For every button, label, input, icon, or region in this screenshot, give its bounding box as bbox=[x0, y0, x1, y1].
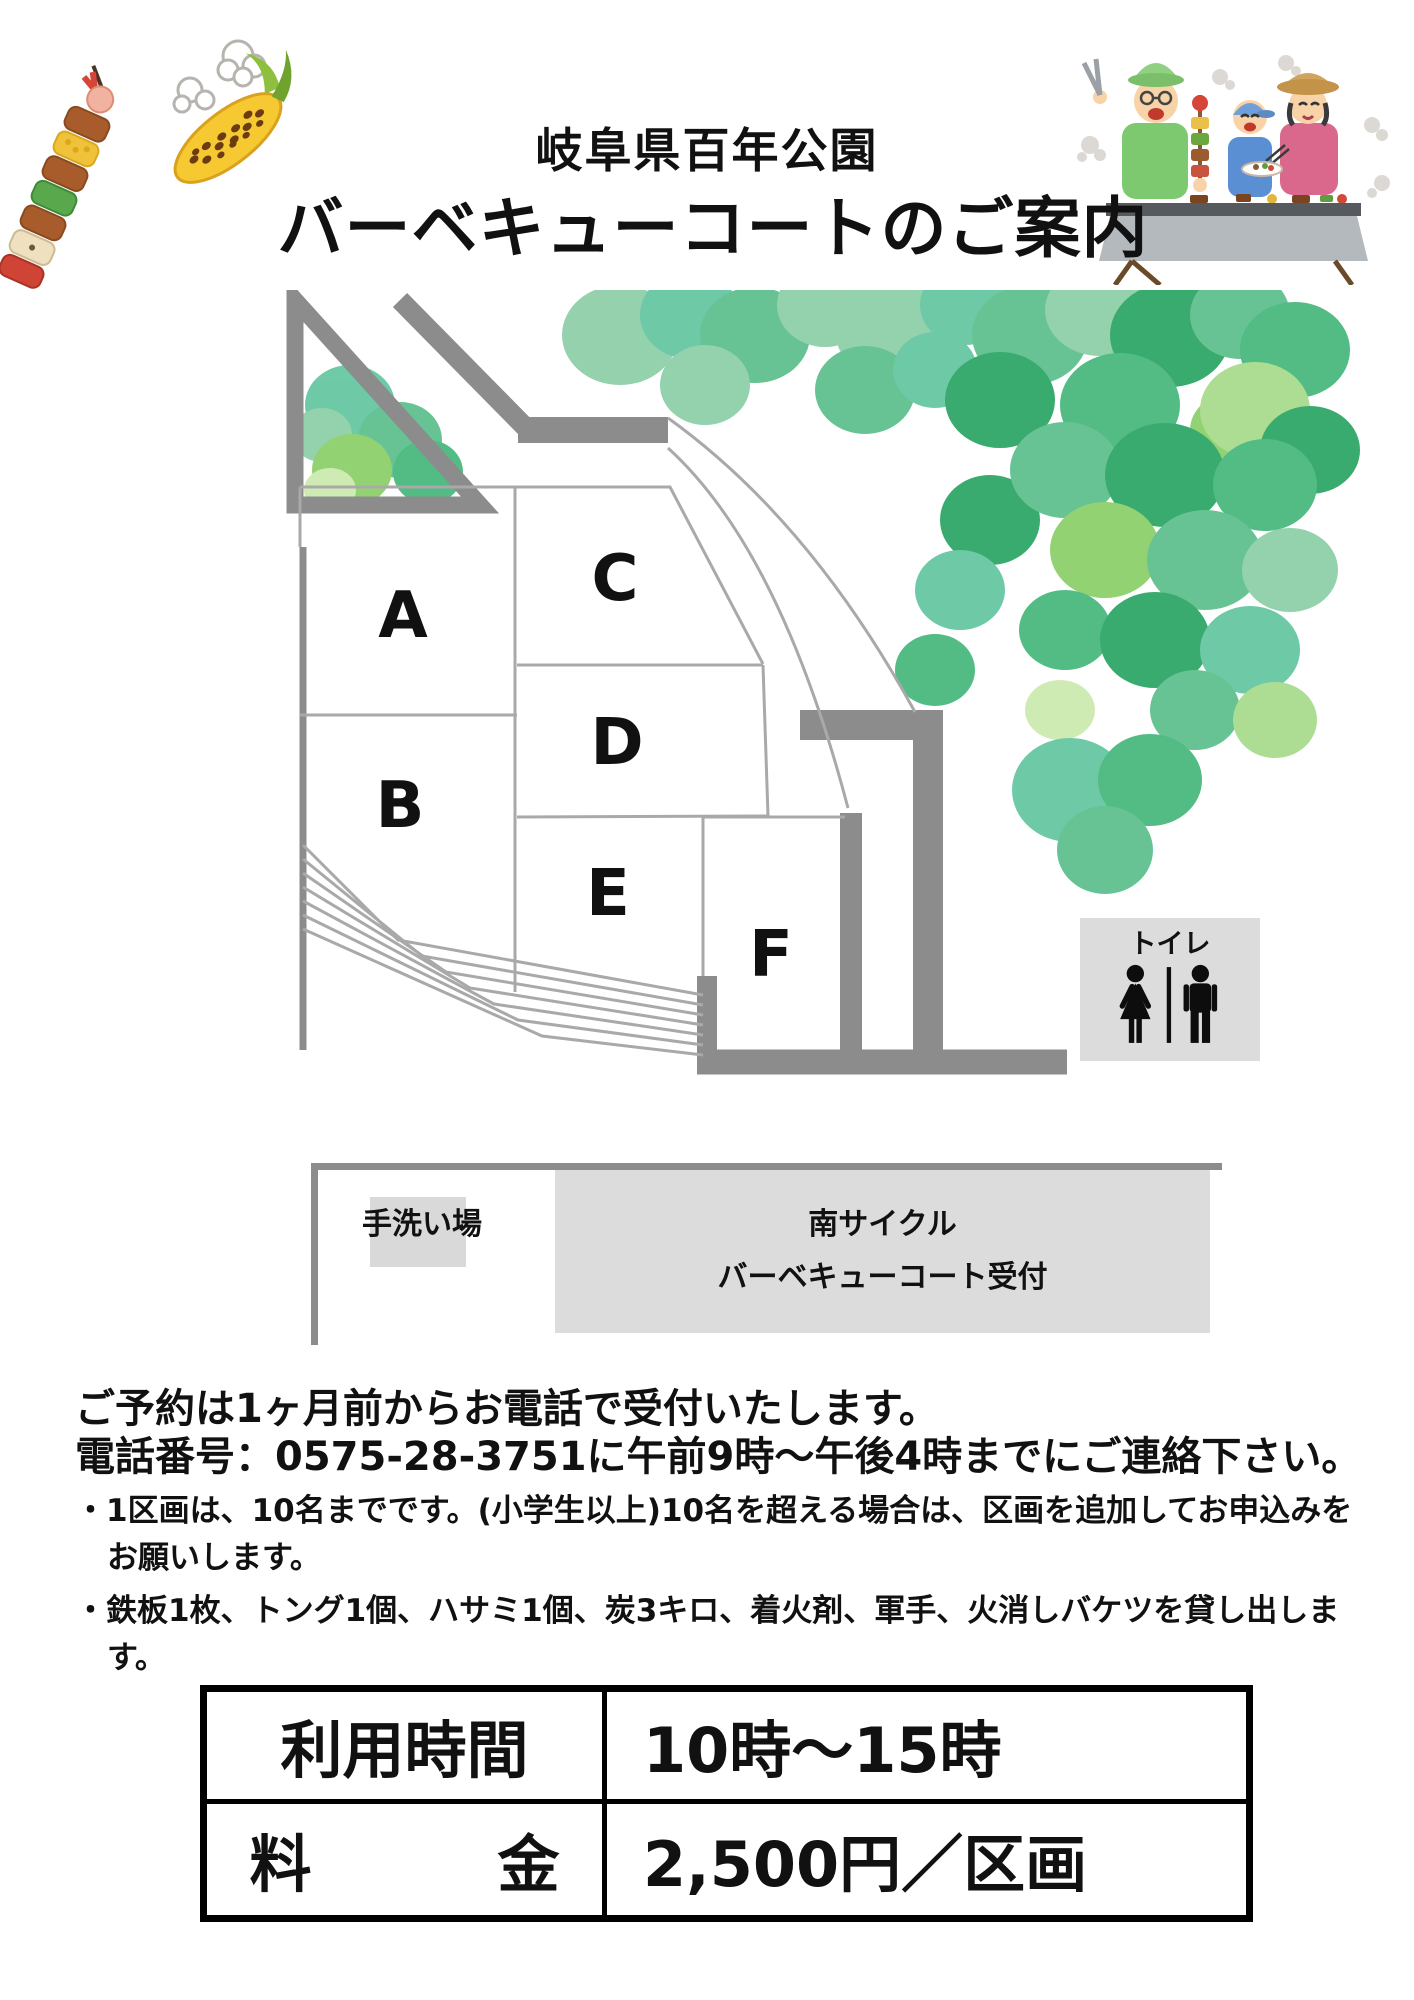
restroom-icons bbox=[1105, 961, 1235, 1049]
plot-label-e: E bbox=[586, 857, 630, 931]
tongs-icon bbox=[1084, 59, 1100, 95]
woman-icon bbox=[1120, 965, 1150, 1043]
usage-info-table: 利用時間 10時～15時 料 金 2,500円／区画 bbox=[200, 1685, 1253, 1922]
toilet-label: トイレ bbox=[1130, 922, 1211, 961]
reservation-notes: ご予約は1ヶ月前からお電話で受付いたします。 電話番号：0575-28-3751… bbox=[75, 1385, 1375, 1681]
trees bbox=[292, 290, 1360, 894]
table-value-hours: 10時～15時 bbox=[607, 1692, 1246, 1804]
table-label-hours: 利用時間 bbox=[207, 1692, 607, 1804]
plot-labels: A B C D E F bbox=[376, 542, 793, 992]
table-value-fee: 2,500円／区画 bbox=[607, 1804, 1246, 1916]
reception-line2: バーベキューコート受付 bbox=[718, 1252, 1048, 1305]
note-bullet-1: ・1区画は、10名までです。(小学生以上)10名を超える場合は、区画を追加してお… bbox=[75, 1488, 1375, 1581]
man-icon bbox=[1184, 965, 1218, 1043]
reservation-line: ご予約は1ヶ月前からお電話で受付いたします。 bbox=[75, 1385, 1375, 1433]
page-title: バーベキューコートのご案内 bbox=[6, 175, 1414, 271]
divider-bar bbox=[1167, 967, 1171, 1043]
reception-line1: 南サイクル bbox=[808, 1199, 957, 1252]
path-upper-edge bbox=[668, 418, 915, 712]
poster-page: 岐阜県百年公園 バーベキューコートのご案内 bbox=[0, 0, 1414, 2000]
note-bullet-2: ・鉄板1枚、トング1個、ハサミ1個、炭3キロ、着火剤、軍手、火消しバケツを貸し出… bbox=[75, 1588, 1375, 1681]
entrance-road-line-left bbox=[311, 1163, 318, 1345]
terrace-steps bbox=[303, 845, 703, 1055]
right-road-curb bbox=[800, 725, 928, 1062]
reception-building: 南サイクル バーベキューコート受付 bbox=[555, 1170, 1210, 1333]
entrance-road-line bbox=[314, 1163, 1222, 1170]
handwash-label: 手洗い場 bbox=[362, 1199, 482, 1243]
phone-line: 電話番号：0575-28-3751に午前9時～午後4時までにご連絡下さい。 bbox=[75, 1433, 1375, 1481]
park-name: 岐阜県百年公園 bbox=[0, 112, 1414, 181]
table-label-fee: 料 金 bbox=[207, 1804, 607, 1916]
plot-label-d: D bbox=[590, 706, 643, 780]
plot-label-f: F bbox=[749, 918, 793, 992]
plot-label-c: C bbox=[592, 542, 639, 616]
plot-label-b: B bbox=[376, 769, 425, 843]
path-lower-edge bbox=[668, 448, 848, 808]
plot-label-a: A bbox=[378, 579, 428, 653]
toilet-sign: トイレ bbox=[1080, 918, 1260, 1061]
